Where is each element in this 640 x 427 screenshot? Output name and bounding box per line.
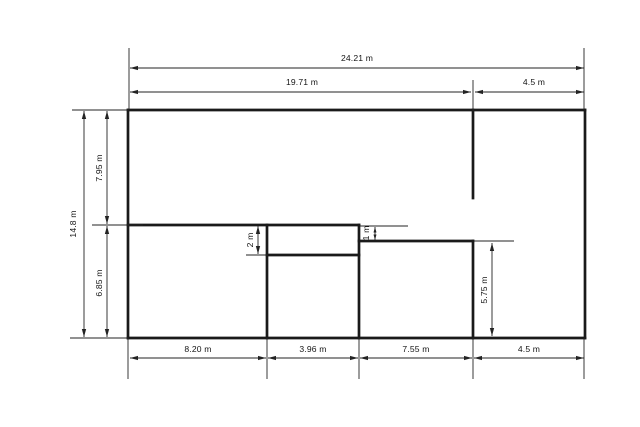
drawing-background	[0, 0, 640, 427]
technical-drawing-page: 24.21 m19.71 m4.5 m14.8 m7.95 m6.85 m8.2…	[0, 0, 640, 427]
dimension-label: 3.96 m	[299, 344, 326, 354]
dimension-label: 8.20 m	[184, 344, 211, 354]
dimension-label: 7.95 m	[94, 154, 104, 181]
dimension-label: 6.85 m	[94, 269, 104, 296]
dimension-label: 19.71 m	[286, 77, 318, 87]
dimension-label: 2 m	[245, 233, 255, 248]
floor-plan-drawing: 24.21 m19.71 m4.5 m14.8 m7.95 m6.85 m8.2…	[0, 0, 640, 427]
dimension-label: 4.5 m	[518, 344, 540, 354]
dimension-label: 7.55 m	[402, 344, 429, 354]
dimension-label: 4.5 m	[523, 77, 545, 87]
dimension-label: 14.8 m	[68, 210, 78, 237]
dimension-label: 5.75 m	[479, 276, 489, 303]
dimension-label: 24.21 m	[341, 53, 373, 63]
dimension-label: 1 m	[361, 226, 371, 241]
